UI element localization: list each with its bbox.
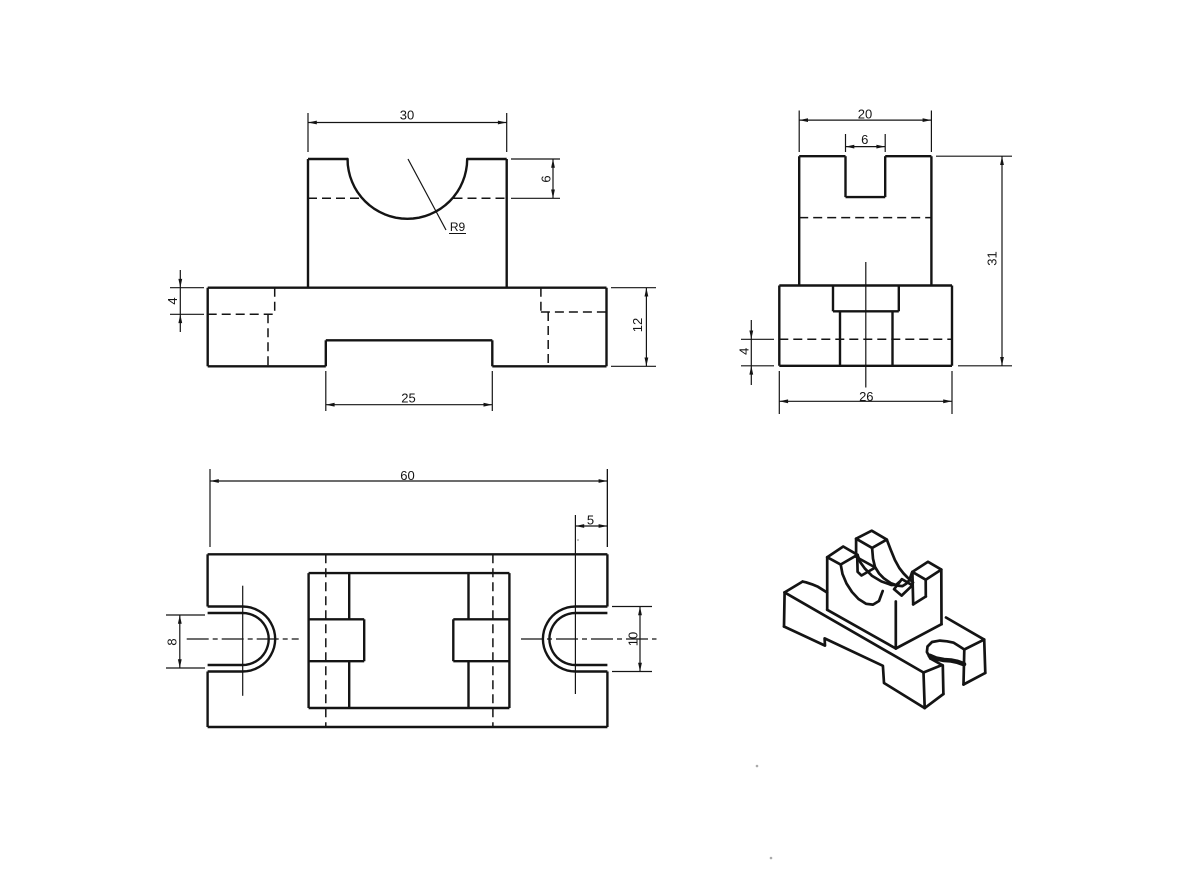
- svg-text:4: 4: [736, 348, 751, 355]
- svg-text:8: 8: [165, 638, 180, 645]
- svg-text:12: 12: [630, 318, 645, 332]
- svg-text:60: 60: [400, 468, 414, 483]
- svg-text:R9: R9: [450, 220, 466, 234]
- svg-text:26: 26: [859, 389, 873, 404]
- svg-text:25: 25: [401, 391, 415, 406]
- svg-text:20: 20: [858, 107, 872, 122]
- svg-text:31: 31: [985, 251, 1000, 265]
- svg-text:6: 6: [861, 132, 868, 147]
- svg-text:5: 5: [587, 512, 594, 527]
- svg-text:4: 4: [165, 297, 180, 304]
- svg-text:30: 30: [400, 108, 414, 123]
- svg-text:6: 6: [539, 175, 554, 182]
- svg-text:10: 10: [626, 632, 641, 646]
